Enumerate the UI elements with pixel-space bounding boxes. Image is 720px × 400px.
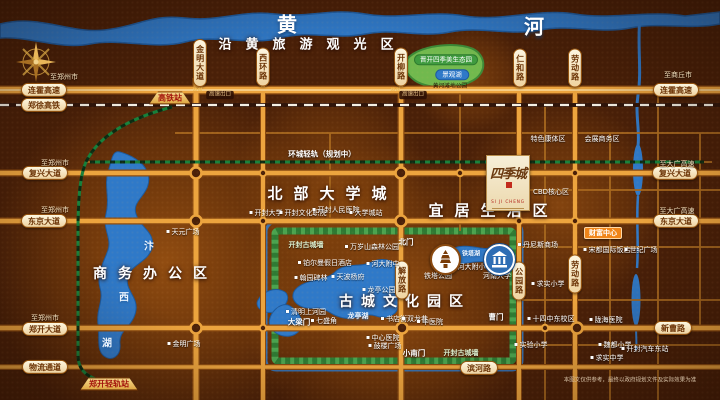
poi-label: 会展商务区 [585, 135, 620, 143]
road-name-label: 滨河路 [460, 361, 498, 375]
road-name-label-vertical: 劳动路 [568, 49, 582, 88]
poi-dot-icon [528, 317, 531, 320]
poi-dot-icon [381, 317, 384, 320]
expressway-exit-label: 高速出口 [399, 91, 427, 99]
brand-seal-icon [506, 182, 512, 188]
interchange-marker-icon: »« [192, 85, 202, 95]
poi-label: 陇海医院 [590, 316, 623, 324]
poi-label: 万岁山森林公园 [345, 243, 399, 251]
poi-label: 中心医院 [367, 334, 400, 342]
road-name-label: 新曹路 [654, 321, 692, 335]
poi-label: 清明上河园 [286, 308, 326, 316]
brand-rule [492, 208, 524, 209]
road-name-label: 物流通道 [22, 360, 68, 374]
compass-icon [14, 40, 58, 84]
city-wall-label: 开封古城墙 [444, 349, 479, 357]
poi-label: 中医院 [417, 318, 443, 326]
poi-label: 宋都国际饭店 [584, 246, 631, 254]
poi-label: 大学城站 [350, 209, 383, 217]
city-gate-label: 曹门 [489, 314, 504, 323]
road-name-label-vertical: 开柳路 [394, 48, 408, 87]
poi-label: 翰园碑林 [295, 274, 328, 282]
poi-label: 开封大学 [250, 209, 283, 217]
poi-dot-icon [518, 243, 521, 246]
lake-name-label: 汴 [144, 241, 154, 253]
poi-dot-icon [332, 275, 335, 278]
poi-dot-icon [367, 262, 370, 265]
poi-dot-icon [167, 230, 170, 233]
direction-note: 至大广高速 [660, 207, 695, 215]
poi-dot-icon [622, 347, 625, 350]
road-name-label: 连霍高速 [21, 83, 67, 97]
disclaimer-text: 本图文仅供参考，最终以政府规划文件及实际效果为准 [564, 375, 696, 383]
poi-label: 龙亭公园 [363, 286, 396, 294]
poi-dot-icon [345, 245, 348, 248]
poi-label: 天波杨府 [332, 273, 365, 281]
station-banner: 郑开轻轨站 [80, 377, 138, 390]
poi-dot-icon [532, 282, 535, 285]
poi-label: 求实小学 [532, 280, 565, 288]
poi-dot-icon [168, 342, 171, 345]
road-name-label: 复兴大道 [652, 166, 698, 180]
poi-dot-icon [402, 317, 405, 320]
poi-label: 丹尼斯商场 [518, 241, 558, 249]
lake-name-label: 铁塔湖 [462, 252, 480, 259]
yellow-river-label: 河 [524, 16, 544, 39]
poi-label: 鼓楼广场 [369, 342, 402, 350]
poi-dot-icon [584, 248, 587, 251]
eco-park-label: 晋开四季美生态园 [414, 54, 478, 65]
poi-label: 铂尔曼假日酒店 [298, 259, 352, 267]
poi-label: CBD核心区 [533, 188, 569, 196]
direction-note: 至郑州市 [31, 314, 59, 322]
poi-dot-icon [417, 320, 420, 323]
lake-name-label: 龙亭湖 [348, 312, 369, 320]
station-banner: 高铁站 [149, 91, 191, 104]
zone-title: 商务办公区 [82, 266, 218, 282]
university-icon [484, 244, 515, 275]
light-rail-note: 环城轻轨（规划中） [288, 151, 356, 160]
poi-label: 开封汽车东站 [622, 345, 669, 353]
poi-dot-icon [591, 356, 594, 359]
city-wall-label: 开封古城墙 [289, 241, 324, 249]
lake-name-label: 西 [119, 292, 129, 304]
city-gate-label: 大梁门 [288, 319, 311, 328]
direction-note: 至商丘市 [664, 71, 692, 79]
direction-note: 至郑州市 [41, 206, 69, 214]
poi-dot-icon [599, 343, 602, 346]
road-name-label: 东京大道 [653, 214, 699, 228]
poi-dot-icon [363, 288, 366, 291]
brand-name: 四季城 [487, 163, 529, 197]
road-name-label: 复兴大道 [22, 166, 68, 180]
road-name-label-vertical: 公园路 [512, 262, 526, 301]
direction-note: 至大广高速 [660, 160, 695, 168]
poi-dot-icon [250, 211, 253, 214]
zone-title: 沿黄旅游观光区 [204, 39, 407, 54]
poi-dot-icon [298, 261, 301, 264]
poi-dot-icon [367, 336, 370, 339]
road-name-label: 连霍高速 [653, 83, 699, 97]
logo-card: 四季城 SI JI CHENG [486, 155, 530, 211]
road-name-label-vertical: 西环路 [256, 48, 270, 87]
poi-label: 求实中学 [591, 354, 624, 362]
poi-label: 金明广场 [168, 340, 201, 348]
poi-label: 实验小学 [515, 341, 548, 349]
poi-label: 河大附中 [367, 260, 400, 268]
road-name-label: 郑徐高铁 [21, 98, 67, 112]
poi-label: 十四中东校区 [528, 315, 575, 323]
poi-dot-icon [515, 343, 518, 346]
map-canvas: 沿黄旅游观光区北部大学城宜居生活区商务办公区古城文化园区连霍高速郑徐高铁复兴大道… [0, 0, 720, 400]
city-gate-label: 北门 [399, 239, 414, 248]
poi-dot-icon [286, 310, 289, 313]
road-name-label-vertical: 劳动路 [568, 255, 582, 294]
park-lake-label: 景观湖 [435, 69, 469, 80]
poi-dot-icon [311, 319, 314, 322]
lake-name-label: 湖 [102, 338, 112, 350]
mall-badge: 财富中心 [584, 227, 622, 239]
poi-dot-icon [280, 211, 283, 214]
pagoda-park-icon [430, 244, 461, 275]
brand-subtitle: SI JI CHENG [490, 200, 526, 205]
zone-title: 北部大学城 [256, 185, 397, 202]
poi-dot-icon [369, 344, 372, 347]
city-gate-label: 小南门 [403, 350, 426, 359]
labels-layer: 沿黄旅游观光区北部大学城宜居生活区商务办公区古城文化园区连霍高速郑徐高铁复兴大道… [0, 0, 720, 400]
poi-dot-icon [590, 318, 593, 321]
yellow-river-label: 黄 [277, 14, 297, 37]
road-name-label: 东京大道 [21, 214, 67, 228]
direction-note: 至郑州市 [41, 159, 69, 167]
poi-label: 世纪广场 [625, 246, 658, 254]
poi-label: 七盛角 [311, 317, 337, 325]
road-name-label-vertical: 仁和路 [513, 49, 527, 88]
interchange-marker-icon: »« [390, 85, 400, 95]
poi-dot-icon [295, 276, 298, 279]
poi-dot-icon [350, 211, 353, 214]
road-name-label-vertical: 金明大道 [193, 39, 207, 87]
road-name-label: 郑开大道 [22, 322, 68, 336]
poi-label: 特色康体区 [531, 135, 566, 143]
expressway-exit-label: 高速出口 [206, 91, 234, 99]
poi-dot-icon [313, 208, 316, 211]
riverside-park-label: 黄河滩地公园 [433, 84, 467, 91]
poi-dot-icon [625, 248, 628, 251]
poi-label: 天元广场 [167, 228, 200, 236]
